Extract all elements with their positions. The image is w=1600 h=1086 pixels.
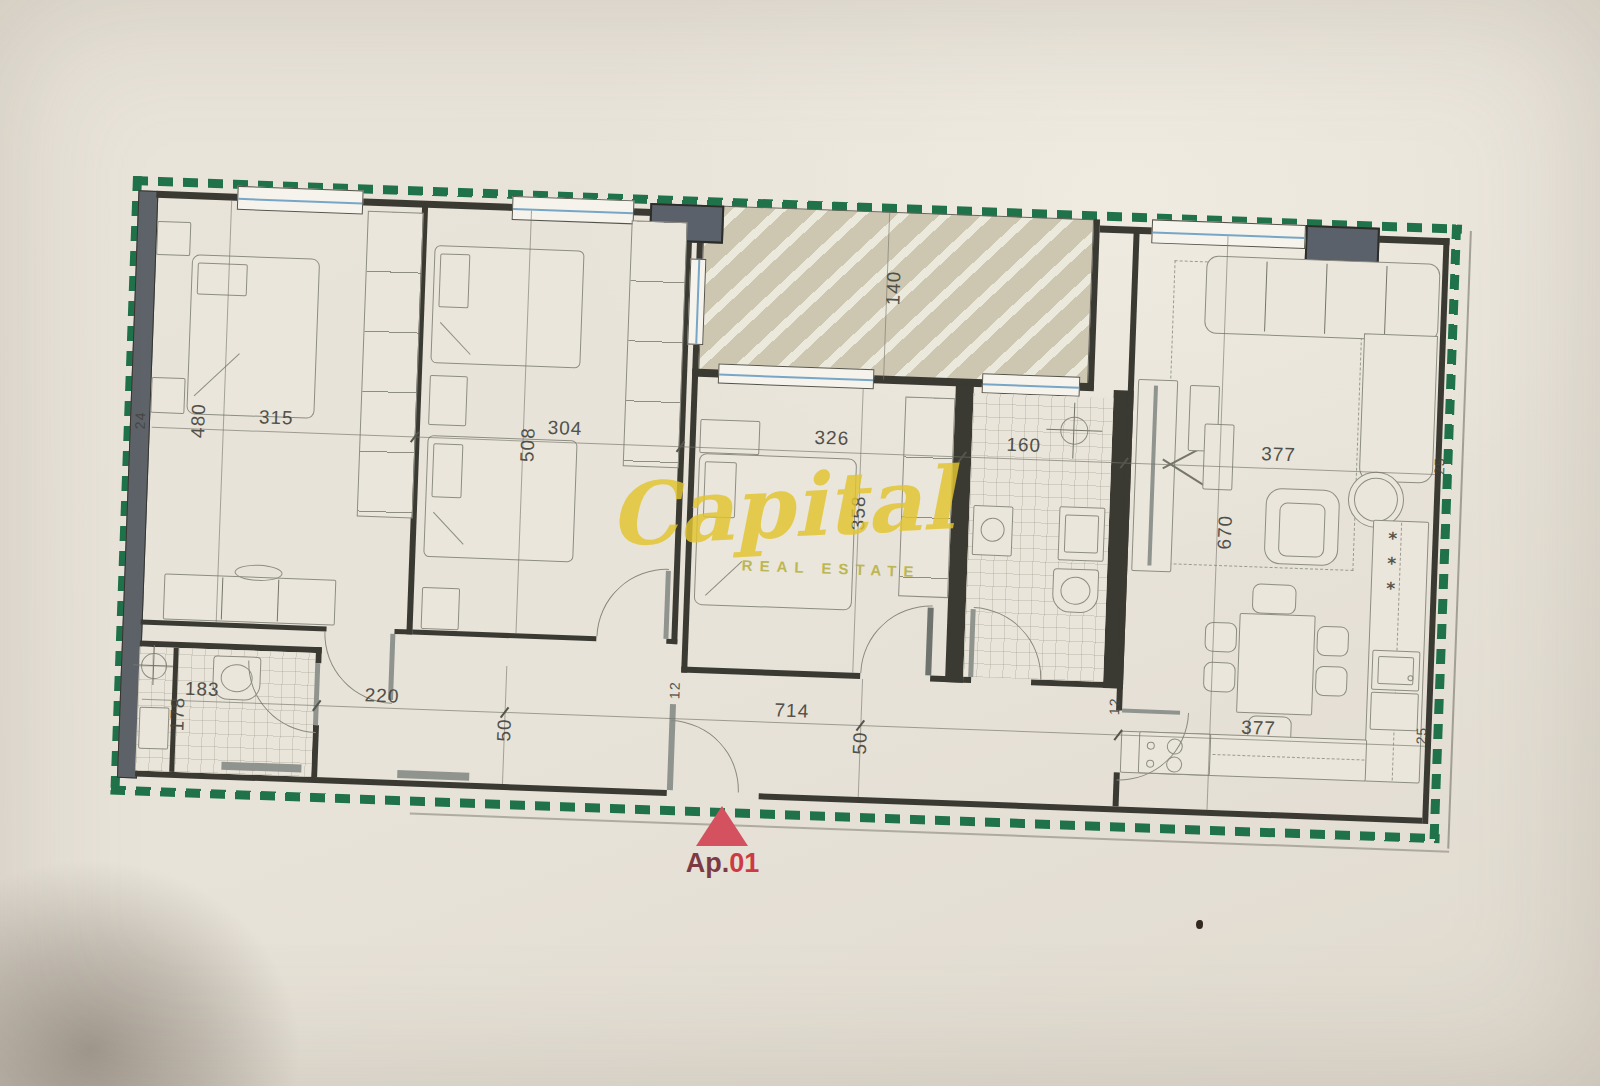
dim-wall-int-b: 12 <box>1107 697 1122 715</box>
dim-segment-b: 50 <box>850 731 870 755</box>
dim-terrace-depth: 140 <box>883 270 903 305</box>
kitchen-vent-marks: *** <box>1380 528 1403 604</box>
wardrobe-bedroom2 <box>623 220 688 468</box>
dim-dining-width: 377 <box>1241 717 1276 737</box>
dim-wall-right-bottom: 25 <box>1414 727 1429 745</box>
dim-bedroom1-depth: 480 <box>188 403 208 438</box>
nightstand <box>428 375 468 426</box>
dim-segment-a: 50 <box>494 718 514 742</box>
corner-shadow <box>0 860 300 1086</box>
chair <box>1203 662 1236 693</box>
window-bedroom1 <box>237 186 364 215</box>
dim-bedroom1-width: 315 <box>259 407 294 427</box>
bathroom-sink-basin <box>1064 514 1099 553</box>
pillow <box>438 253 470 308</box>
window-terrace-side <box>687 258 706 345</box>
floorplan-photo: *** <box>0 0 1600 1086</box>
radiator <box>397 770 469 781</box>
north-triangle-marker <box>696 806 748 846</box>
chair <box>1204 622 1237 653</box>
dim-wall-right-top: 25 <box>1432 457 1447 475</box>
nightstand <box>150 377 185 414</box>
pillow <box>197 262 248 296</box>
pillar-top-right <box>1305 225 1380 264</box>
dim-living-depth: 670 <box>1215 515 1235 550</box>
boiler <box>138 707 170 750</box>
dim-living-width: 377 <box>1261 444 1296 464</box>
dim-bedroom2-width: 304 <box>547 418 582 438</box>
armchair-seat <box>1278 502 1326 558</box>
dim-bedroom2-depth: 508 <box>517 427 537 462</box>
dim-wc-width: 183 <box>185 679 220 699</box>
dim-corridor-width: 714 <box>774 700 809 720</box>
apartment-label-number: 01 <box>729 848 759 878</box>
dining-table <box>1236 613 1316 716</box>
apartment-label-prefix: Ap. <box>686 848 730 878</box>
dim-wc-depth: 178 <box>167 696 187 731</box>
nightstand <box>156 221 191 256</box>
apartment-label: Ap.01 <box>660 848 785 879</box>
sofa <box>1204 255 1441 342</box>
dim-wall-int-a: 12 <box>667 681 682 699</box>
sofa-chaise <box>1359 333 1438 484</box>
paper-speck <box>1196 920 1203 929</box>
window-living <box>1151 219 1306 249</box>
apartment-plan: *** <box>109 176 1464 870</box>
pillow <box>431 443 463 498</box>
chair <box>1315 666 1348 697</box>
chair <box>1252 583 1297 615</box>
chair <box>1316 626 1349 657</box>
dim-hall-width: 220 <box>364 685 399 705</box>
wardrobe-bedroom1 <box>357 211 424 519</box>
kitchen-sink-basin <box>1370 692 1419 732</box>
dim-wall-left: 24 <box>133 411 148 429</box>
dim-bedroom3-width: 326 <box>814 428 849 448</box>
